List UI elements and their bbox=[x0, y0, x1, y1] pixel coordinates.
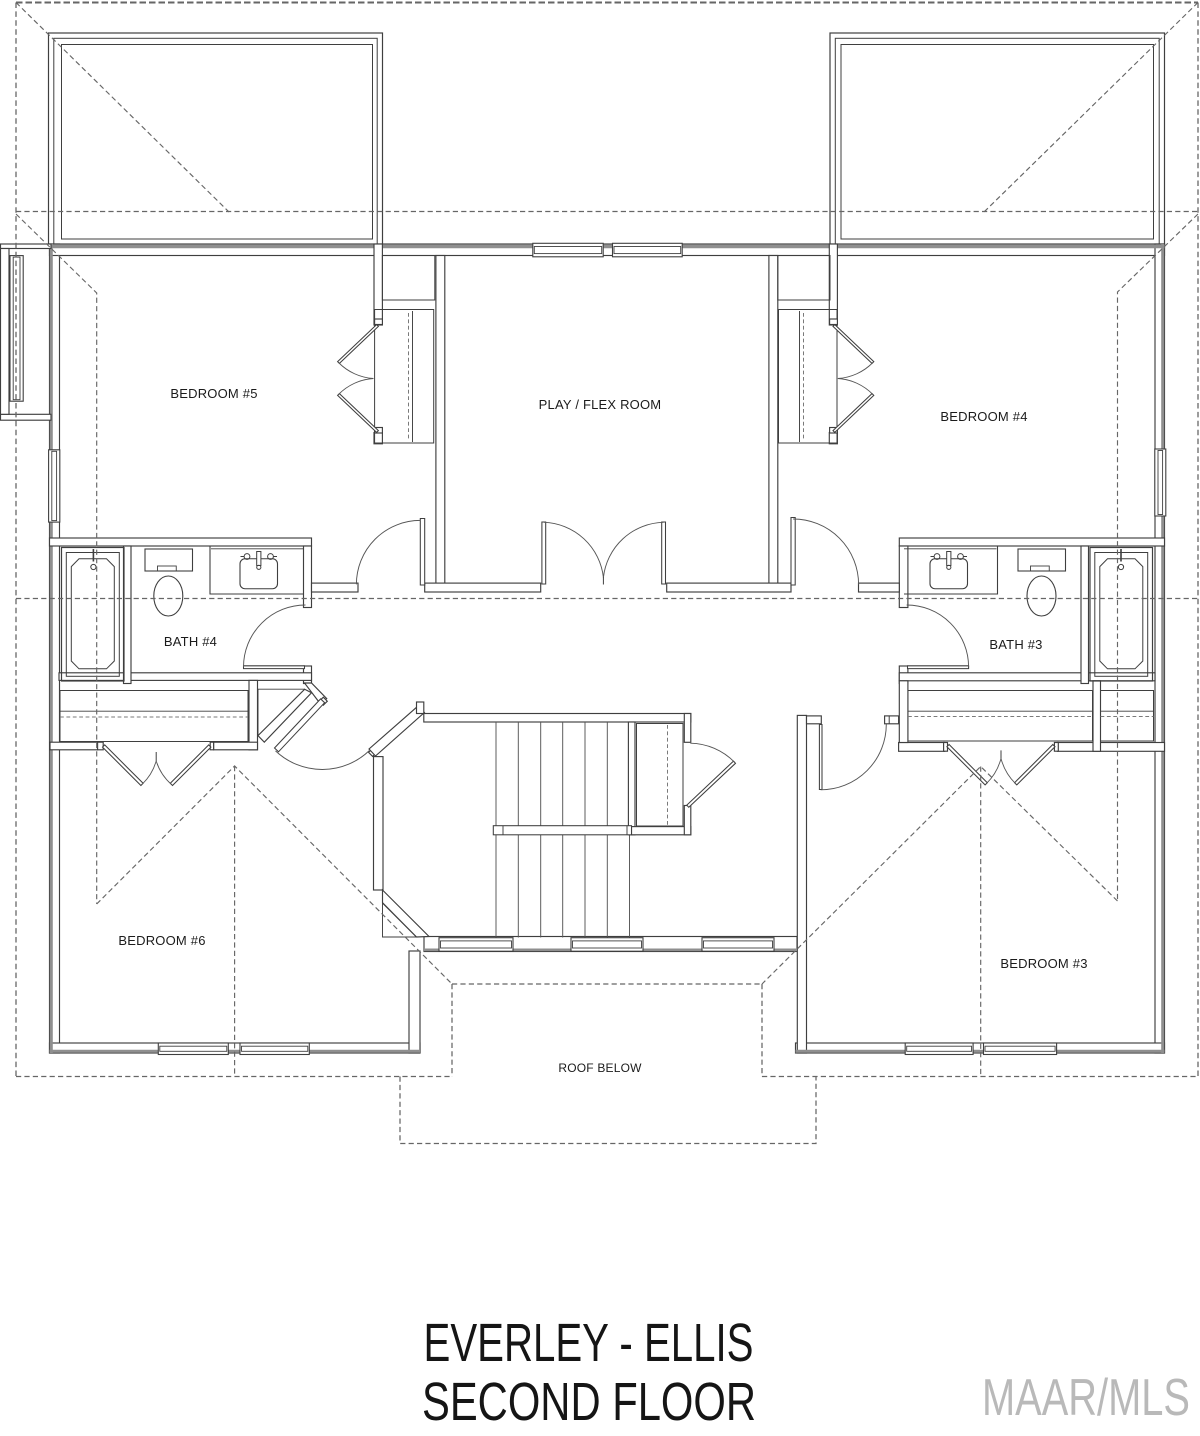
svg-text:PLAY / FLEX ROOM: PLAY / FLEX ROOM bbox=[539, 397, 662, 412]
svg-text:BEDROOM #5: BEDROOM #5 bbox=[170, 386, 257, 401]
svg-text:SECOND FLOOR: SECOND FLOOR bbox=[422, 1372, 756, 1432]
svg-text:BATH #4: BATH #4 bbox=[164, 634, 217, 649]
svg-text:EVERLEY - ELLIS: EVERLEY - ELLIS bbox=[424, 1313, 754, 1373]
svg-text:BATH #3: BATH #3 bbox=[989, 637, 1042, 652]
svg-text:BEDROOM #4: BEDROOM #4 bbox=[940, 409, 1027, 424]
svg-text:MAAR/MLS: MAAR/MLS bbox=[982, 1369, 1190, 1427]
svg-text:BEDROOM #6: BEDROOM #6 bbox=[118, 933, 205, 948]
svg-text:ROOF BELOW: ROOF BELOW bbox=[558, 1061, 642, 1075]
svg-text:BEDROOM #3: BEDROOM #3 bbox=[1000, 956, 1087, 971]
